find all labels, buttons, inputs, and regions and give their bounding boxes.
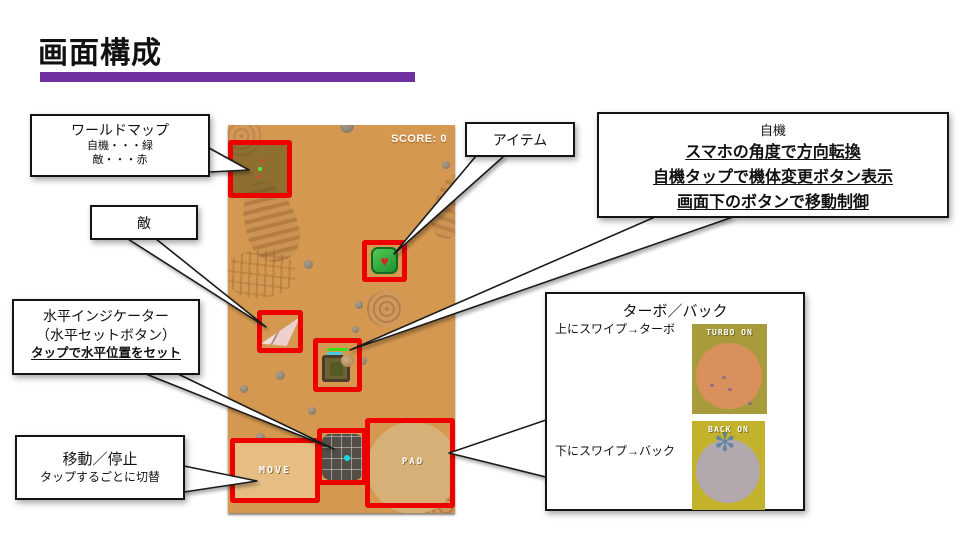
trilobite-fossil <box>427 170 455 242</box>
callout-player-title: 自機 <box>599 120 947 139</box>
back-on-label: BACK ON <box>692 425 765 434</box>
callout-player: 自機 スマホの角度で方向転換 自機タップで機体変更ボタン表示 画面下のボタンで移… <box>597 112 949 218</box>
pebble <box>442 161 450 169</box>
callout-item: アイテム <box>465 122 575 157</box>
back-on-image: ✻ BACK ON <box>692 421 765 510</box>
score-text: SCORE: 0 <box>391 133 447 145</box>
swipe-down-label: 下にスワイプ→バック <box>555 442 675 459</box>
enemy-highlight <box>257 310 303 353</box>
indicator-highlight <box>317 428 367 485</box>
pebble <box>240 385 248 393</box>
item-highlight <box>362 240 407 282</box>
pebble <box>304 260 313 269</box>
callout-horizontal-line3: タップで水平位置をセット <box>14 345 198 362</box>
turbo-circle <box>696 343 762 409</box>
swipe-up-label: 上にスワイプ→ターボ <box>555 320 675 337</box>
callout-move-line1: タップするごとに切替 <box>17 470 183 486</box>
ammonite-fossil <box>367 291 403 327</box>
player-highlight <box>313 338 362 392</box>
callout-turbo-title: ターボ／バック <box>547 300 803 321</box>
worldmap-highlight <box>228 140 292 198</box>
move-highlight <box>230 438 320 503</box>
callout-move-title: 移動／停止 <box>17 450 183 470</box>
callout-horizontal-indicator: 水平インジケーター （水平セットボタン） タップで水平位置をセット <box>12 299 200 375</box>
callout-horizontal-line2: （水平セットボタン） <box>14 326 198 345</box>
title-accent-bar <box>40 72 415 82</box>
turbo-on-image: TURBO ON <box>692 324 767 414</box>
game-screenshot: SCORE: 0 ♥ MOVE PAD <box>228 125 455 513</box>
pebble <box>355 301 363 309</box>
page-title: 画面構成 <box>38 28 162 72</box>
callout-horizontal-line1: 水平インジケーター <box>14 307 198 326</box>
pebble <box>352 326 359 333</box>
callout-worldmap-line2: 敵・・・赤 <box>32 153 208 167</box>
turbo-on-label: TURBO ON <box>692 328 767 337</box>
callout-enemy: 敵 <box>90 205 198 240</box>
slide: 画面構成 SCORE: 0 ♥ <box>0 0 960 540</box>
callout-player-line2: 自機タップで機体変更ボタン表示 <box>599 166 947 191</box>
pebble <box>308 407 316 415</box>
pebble <box>276 371 285 380</box>
callout-item-title: アイテム <box>493 130 548 150</box>
callout-worldmap: ワールドマップ 自機・・・緑 敵・・・赤 <box>30 114 210 177</box>
callout-move-stop: 移動／停止 タップするごとに切替 <box>15 435 185 500</box>
pebble <box>340 125 354 133</box>
callout-worldmap-title: ワールドマップ <box>32 121 208 139</box>
pad-highlight <box>365 418 455 508</box>
callout-worldmap-line1: 自機・・・緑 <box>32 139 208 153</box>
callout-player-line1: スマホの角度で方向転換 <box>599 141 947 166</box>
callout-enemy-title: 敵 <box>137 213 151 233</box>
callout-turbo-back: ターボ／バック 上にスワイプ→ターボ 下にスワイプ→バック TURBO ON ✻… <box>545 292 805 511</box>
callout-player-line3: 画面下のボタンで移動制御 <box>599 191 947 216</box>
tail-turbo <box>449 420 546 477</box>
